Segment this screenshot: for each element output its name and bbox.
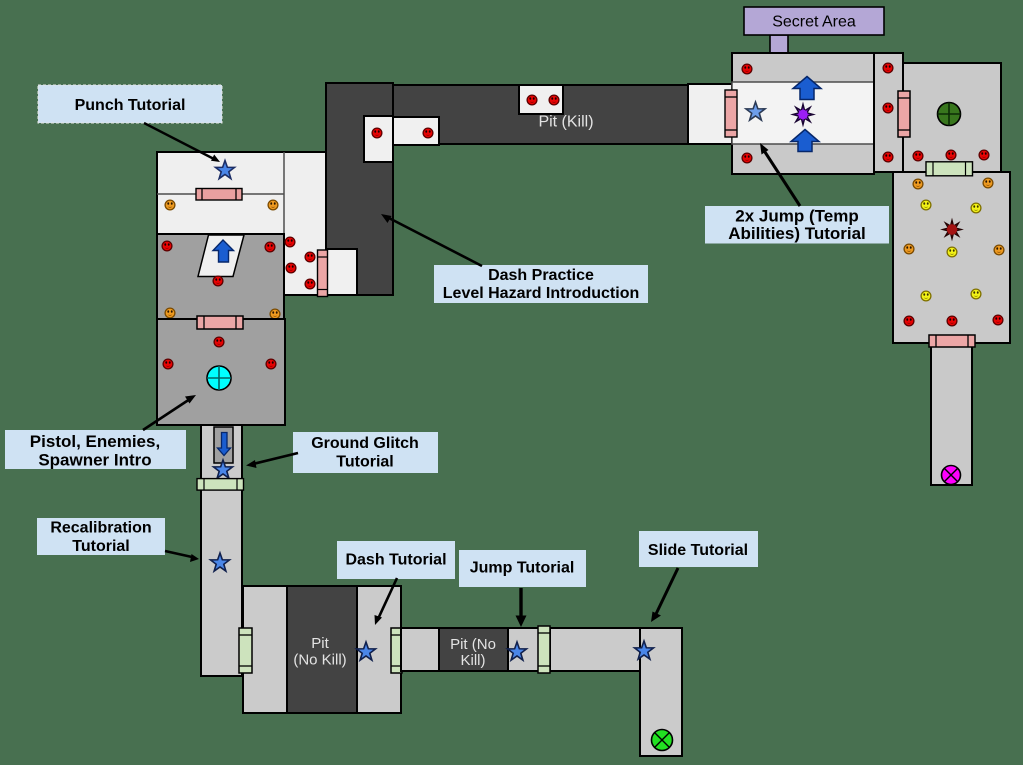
svg-text:Punch Tutorial: Punch Tutorial — [75, 97, 186, 114]
svg-text:Dash Practice: Dash Practice — [488, 267, 594, 284]
svg-text:Jump Tutorial: Jump Tutorial — [470, 560, 575, 577]
svg-text:Tutorial: Tutorial — [72, 538, 129, 555]
svg-text:Slide Tutorial: Slide Tutorial — [648, 542, 748, 559]
svg-text:Secret Area: Secret Area — [772, 14, 856, 31]
svg-text:Pit: Pit — [311, 635, 329, 652]
svg-text:Dash Tutorial: Dash Tutorial — [345, 552, 446, 569]
svg-text:Kill): Kill) — [461, 652, 486, 669]
svg-text:2x Jump (Temp: 2x Jump (Temp — [735, 207, 858, 226]
svg-text:Level Hazard Introduction: Level Hazard Introduction — [443, 285, 639, 302]
svg-text:Pistol, Enemies,: Pistol, Enemies, — [30, 432, 160, 451]
svg-text:Recalibration: Recalibration — [50, 520, 151, 537]
svg-text:Ground Glitch: Ground Glitch — [311, 435, 419, 452]
svg-text:Pit (Kill): Pit (Kill) — [538, 114, 593, 131]
svg-text:Spawner Intro: Spawner Intro — [38, 451, 151, 470]
svg-text:Pit (No: Pit (No — [450, 636, 496, 653]
svg-text:Tutorial: Tutorial — [336, 454, 393, 471]
svg-text:Abilities) Tutorial: Abilities) Tutorial — [728, 224, 866, 243]
svg-text:(No Kill): (No Kill) — [293, 652, 346, 669]
